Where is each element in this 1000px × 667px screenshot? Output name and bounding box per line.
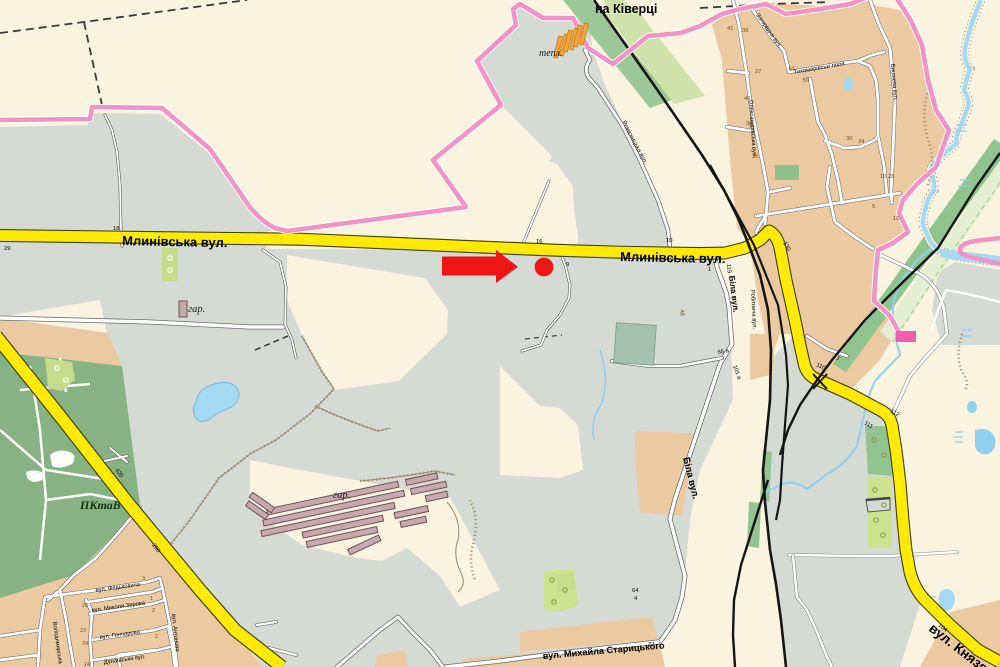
svg-text:64: 64 xyxy=(632,588,639,594)
svg-text:9: 9 xyxy=(765,26,768,32)
svg-text:24: 24 xyxy=(84,662,90,667)
svg-text:61: 61 xyxy=(788,66,795,73)
svg-text:48: 48 xyxy=(678,309,685,316)
svg-text:18: 18 xyxy=(113,226,119,232)
svg-text:29: 29 xyxy=(4,246,10,252)
svg-text:16: 16 xyxy=(536,239,542,245)
svg-text:119: 119 xyxy=(725,264,732,274)
svg-text:38: 38 xyxy=(746,121,752,127)
svg-text:24: 24 xyxy=(82,641,88,647)
svg-text:40: 40 xyxy=(744,96,750,102)
svg-text:23: 23 xyxy=(80,628,86,634)
svg-text:36: 36 xyxy=(752,154,758,160)
svg-text:на Ківерці: на Ківерці xyxy=(595,2,657,16)
svg-text:36: 36 xyxy=(742,28,748,34)
svg-text:1: 1 xyxy=(708,267,711,273)
svg-text:1: 1 xyxy=(150,596,153,602)
svg-text:Млинівська вул.: Млинівська вул. xyxy=(620,249,726,266)
svg-text:41: 41 xyxy=(727,26,733,32)
svg-text:гар.: гар. xyxy=(188,304,205,315)
svg-text:77: 77 xyxy=(648,642,654,648)
svg-text:2: 2 xyxy=(155,634,158,640)
svg-text:Млинівська вул.: Млинівська вул. xyxy=(122,233,228,250)
svg-text:28: 28 xyxy=(888,174,894,180)
svg-text:ПКтаВ: ПКтаВ xyxy=(79,498,121,512)
svg-text:10: 10 xyxy=(666,238,672,244)
svg-text:34: 34 xyxy=(858,139,865,145)
svg-text:3: 3 xyxy=(142,576,145,582)
svg-text:10: 10 xyxy=(893,216,899,222)
svg-text:55: 55 xyxy=(802,77,809,84)
svg-text:10: 10 xyxy=(880,174,886,180)
svg-text:2: 2 xyxy=(152,608,155,614)
svg-text:гар.: гар. xyxy=(333,490,350,501)
svg-text:28: 28 xyxy=(82,603,88,609)
svg-text:5: 5 xyxy=(872,204,875,210)
svg-text:27: 27 xyxy=(755,69,761,75)
svg-text:тепл.: тепл. xyxy=(539,48,563,59)
svg-text:30: 30 xyxy=(846,136,852,142)
svg-text:9: 9 xyxy=(566,262,569,268)
